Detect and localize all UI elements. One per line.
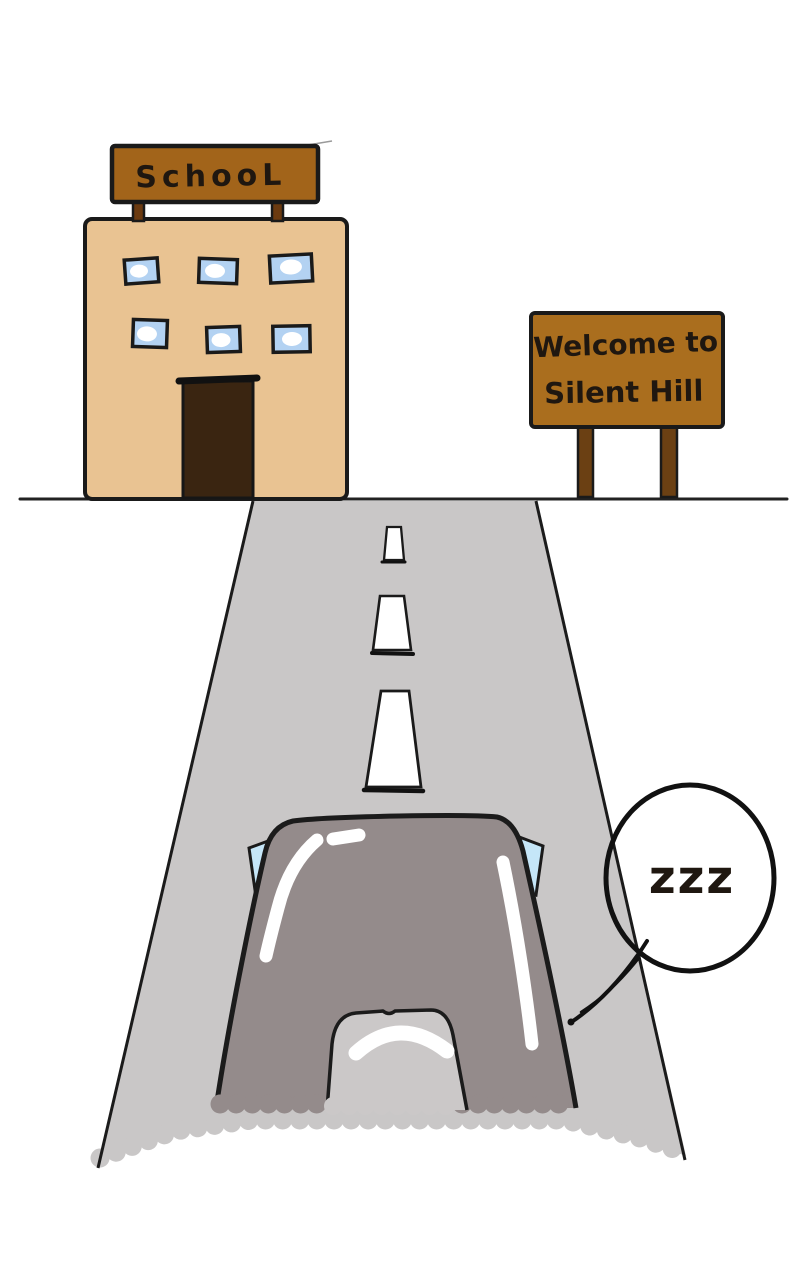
welcome-sign-line1: Welcome to bbox=[533, 325, 719, 364]
school-window bbox=[269, 254, 312, 283]
school-window bbox=[273, 326, 310, 353]
dash-bottom-line bbox=[364, 790, 423, 791]
welcome-sign-leg-left bbox=[578, 424, 593, 497]
school-window bbox=[199, 258, 238, 283]
welcome-sign-leg-right bbox=[661, 424, 677, 497]
school-sign-label: SchooL bbox=[135, 158, 287, 196]
road-dash bbox=[382, 527, 405, 562]
car-highlight-top bbox=[333, 835, 359, 839]
speech-bubble-tail-tip bbox=[568, 1019, 575, 1026]
school-window bbox=[207, 326, 241, 352]
school-window bbox=[124, 258, 159, 284]
welcome-sign-group: Welcome to Silent Hill bbox=[531, 313, 723, 497]
car-rear-window bbox=[327, 1010, 467, 1110]
car-group bbox=[216, 816, 576, 1110]
school-door bbox=[183, 381, 253, 498]
school-window bbox=[133, 319, 168, 347]
welcome-sign-line2: Silent Hill bbox=[544, 374, 704, 411]
school-building-group: SchooL bbox=[85, 141, 347, 499]
sleep-zzz-text: zzz bbox=[649, 850, 735, 904]
dash-bottom-line bbox=[372, 653, 413, 654]
school-door-lintel bbox=[179, 378, 257, 381]
illustration-canvas: SchooL bbox=[0, 0, 800, 1280]
road-scallop-edge bbox=[100, 1120, 686, 1158]
